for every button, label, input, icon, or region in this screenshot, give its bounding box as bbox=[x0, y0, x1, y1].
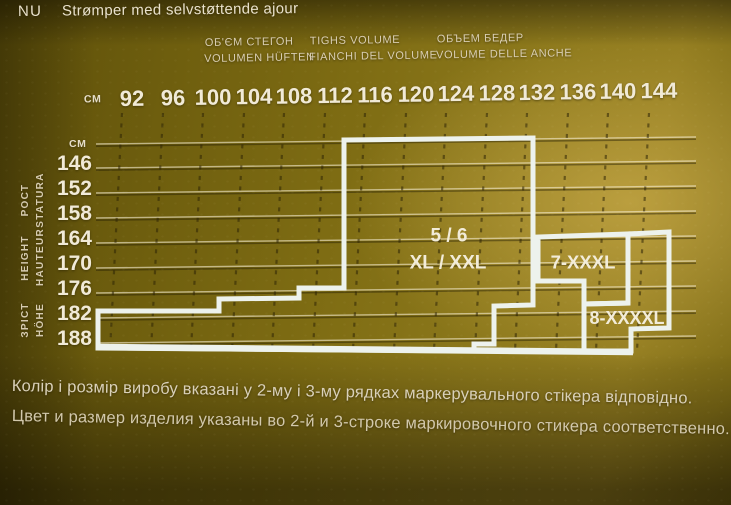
size-region-8-xxxxl-label-0: 8-XXXXL bbox=[589, 308, 664, 328]
grid-col-dashed bbox=[151, 113, 163, 351]
packaging-photo: NU Strømper med selvstøttende ajour ОБ'Є… bbox=[0, 0, 731, 505]
grid-col-dashed bbox=[232, 113, 244, 351]
size-region-7-xxxl-label-0: 7-XXXL bbox=[551, 252, 616, 273]
size-region-5-6-label-0: 5 / 6 bbox=[431, 226, 468, 247]
grid-col-dashed bbox=[191, 113, 203, 351]
size-region-8-xxxxl-outline bbox=[584, 232, 669, 351]
size-region-5-6-label-1: XL / XXL bbox=[410, 253, 487, 274]
grid-col-dashed bbox=[394, 113, 406, 351]
grid-col-dashed bbox=[110, 113, 122, 351]
